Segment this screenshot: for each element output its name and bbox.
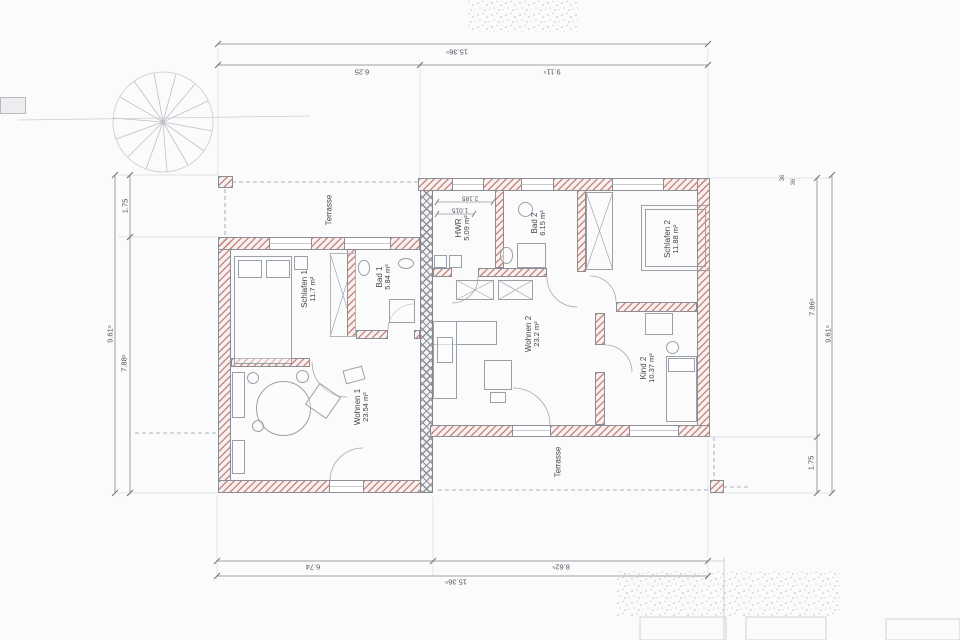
wardrobe (586, 192, 613, 270)
sofa (232, 372, 245, 418)
wall-hwr-bottom (433, 268, 452, 277)
terrace-door (345, 237, 390, 250)
cabinet (498, 280, 533, 300)
dim-right-outer: 9.61⁵ (824, 325, 833, 343)
terrace2-label: Terrasse (553, 447, 562, 478)
dim-top-left: 6.25 (355, 68, 370, 77)
wall-bottom-seg (550, 425, 630, 437)
chair (666, 341, 679, 354)
kitchen-sink (437, 337, 453, 363)
window (330, 480, 363, 493)
terrace2-corner-pier (710, 480, 724, 493)
dim-left-upper: 1.75 (121, 199, 130, 214)
table (484, 360, 512, 390)
chair (296, 370, 309, 383)
room-label-wohnen2: Wohnen 2 23.2 m² (524, 316, 542, 352)
room-label-bad1: Bad 1 5.84 m² (375, 264, 393, 289)
terrace1-corner-pier (218, 176, 233, 188)
dim-top-right: 9.11⁵ (543, 68, 560, 77)
dim-bottom-left: 6.74 (306, 563, 321, 572)
window (453, 178, 483, 191)
dim-hwr-b: 1.015 (452, 207, 468, 214)
cabinet (456, 280, 494, 300)
dim-right-upper: 7.86⁵ (808, 298, 817, 316)
room-label-schlafen2: Schlafen 2 11.88 m² (663, 220, 681, 258)
pillow (668, 358, 695, 372)
wall-bad2-bottom (478, 268, 547, 277)
wall-bad2-right (577, 190, 586, 272)
room-label-kind2: Kind 2 10.37 m² (639, 353, 657, 383)
nightstand (294, 256, 308, 270)
dim-top-total: 15.36⁵ (446, 48, 468, 57)
dim-wall-36a: 36 (780, 175, 786, 182)
sofa (232, 440, 245, 474)
wall-schlafen2-bottom (616, 302, 697, 312)
bush-speckle-top (468, 0, 578, 32)
pillow (238, 260, 262, 278)
party-wall (420, 190, 433, 493)
floor-plan: Schlafen 1 11.7 m² Bad 1 5.84 m² Wohnen … (0, 0, 960, 640)
wall-bad1-bottom (356, 330, 388, 339)
tree-icon (113, 72, 213, 172)
wall-kind2-left (595, 313, 605, 345)
dim-bottom-right: 8.62⁵ (552, 563, 570, 572)
chair (252, 420, 264, 432)
dim-left-outer: 9.61⁵ (106, 325, 115, 343)
dim-right-lower: 1.75 (807, 456, 816, 471)
window (522, 178, 553, 191)
wall-top-seg (418, 178, 453, 191)
toilet (500, 247, 513, 264)
room-label-bad2: Bad 2 6.15 m² (530, 210, 548, 235)
wall-top-seg (390, 237, 420, 250)
dim-left-lower: 7.88⁵ (120, 354, 129, 372)
pillow (266, 260, 290, 278)
desk (645, 313, 673, 335)
room-label-hwr: HWR 5.09 m² (454, 215, 472, 240)
wall-bad1-bottom (414, 330, 420, 339)
wall-kind2-left (595, 372, 605, 425)
wall-top-seg (311, 237, 345, 250)
terrace-door (513, 425, 550, 437)
washbasin (398, 258, 414, 269)
wall-bottom-seg (218, 480, 330, 493)
dim-hwr-a: 2.185 (462, 195, 478, 202)
room-label-wohnen1: Wohnen 1 23.54 m² (353, 389, 371, 425)
chair (247, 372, 259, 384)
toilet (358, 260, 370, 276)
dim-bottom-total: 15.36⁵ (445, 578, 467, 587)
plan-lineart (0, 0, 960, 640)
wall-bottom-seg (430, 425, 513, 437)
window (270, 237, 311, 250)
bush-speckle-bottom (616, 570, 840, 616)
terrace1-label: Terrasse (324, 195, 333, 226)
washing-machine (449, 255, 462, 268)
chair (490, 392, 506, 403)
shower (389, 299, 415, 323)
washing-machine (434, 255, 447, 268)
window (630, 425, 678, 437)
wall-bottom-seg (678, 425, 710, 437)
neighbour-object (0, 97, 26, 114)
dining-table (256, 381, 311, 436)
window (613, 178, 663, 191)
wall-left-outer (218, 237, 231, 493)
room-label-schlafen1: Schlafen 1 11.7 m² (300, 270, 318, 308)
shower (517, 243, 546, 268)
wall-top-seg (218, 237, 270, 250)
wardrobe (330, 253, 356, 337)
dim-wall-36b: 36 (791, 179, 797, 186)
